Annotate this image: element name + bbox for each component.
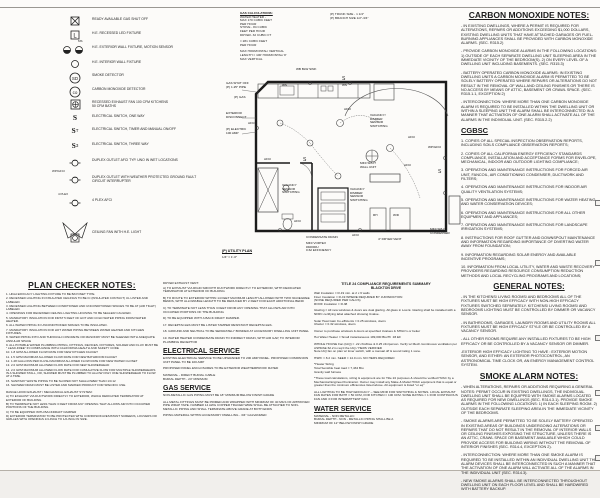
afci-label: AFCI [344,108,351,112]
switch-symbol: S [303,157,307,163]
wp-duplex-outlet-icon: WP/GFCI [58,174,92,186]
duplex-outlet-icon [58,157,92,169]
leader-line [242,90,256,92]
afci-label: AFCI [294,220,301,224]
note-paragraph: - INTERCONNECTION: WHERE MORE THAN ONE S… [461,453,597,474]
note-paragraph: - BATTERY OPERATED CARBON MONOXIDE ALARM… [461,71,597,97]
mini-split-wall-unit [370,174,400,182]
sink-note-label: WB BLW SINK [296,68,316,72]
closet [318,188,348,231]
note-paragraph: - IN THE KITCHENS/ LIVING ROOMS/ AND BED… [461,295,597,316]
note-line: Hot Water Heater = Small instantaneous 1… [314,336,458,340]
note-line: 17. RECEPTACLES MUST BE LISTED TAMPER RE… [163,324,311,328]
margin-tick [595,390,600,396]
note-line: A) TO EXHAUST VIA RIGID SMOOTH DUCTWORK … [163,287,311,294]
gas-service-title: GAS SERVICE [163,385,311,392]
note-line: 18. GROUND AND NEUTRAL TO BE SEPARATELY … [163,330,311,334]
afci-label: AFCI [404,164,411,168]
legend-label: H.E. RECESSED LED FIXTURE [92,30,141,35]
note-line: Solar Heat Gain Co-efficients = 0.25 win… [314,320,458,327]
note-line: EXISTING ELECTRICAL SERVICE TO BE UPGRAD… [163,357,311,364]
cgbsc-body: 1. COPIES OF ALL SPECIAL INSPECTION OBSE… [461,139,597,278]
three-way-sup: 3 [76,143,79,148]
note-paragraph: - NEW SMOKE ALARMS SHALL BE INTERCONNECT… [461,479,597,492]
vacancy-dimmer-label: VACANCY DIMMER SENSOR SWITCHING [350,188,368,202]
legend-item: L H.E. RECESSED LED FIXTURE [58,30,248,40]
led-fixture-icon: L [58,30,92,40]
switch-one-way-symbol: S [58,113,92,122]
plan-caption-title: (P) UTILITY PLAN [222,250,252,254]
legend-label: 4 PLEX AFCI [92,197,112,202]
note-paragraph: - IN BATHROOMS, GARAGES, LAUNDRY ROOMS A… [461,321,597,334]
vortex-label: MINI VORTEX #40000U 0.62 EFFICIENCY [306,242,331,253]
sd-letters: SD [72,76,79,81]
note-line: 9. ALL POTABLE WATER PLUMBING PIPING, FI… [6,344,158,351]
ws-label: WS [282,84,287,88]
co-notes-title: CARBON MONOXIDE NOTES: [461,10,597,20]
washer-dryer-box [390,208,410,230]
gas-calc-total: = 281 CUBIC FEET PER HOUR [240,40,292,47]
wall-fixture-icon [58,59,92,69]
legend-label: H.E. INTERIOR WALL FIXTURE [92,59,141,64]
legend-item: READY AVAILABLE GAS SHUT OFF [58,16,248,26]
plan-checker-items: 1. HIGH EFFICACY LIGHTING FIXTURE TO BE … [6,293,158,387]
wiring-run [390,148,420,198]
dryer-vent-items: A) TO EXHAUST VIA RIGID SMOOTH DUCTWORK … [163,287,311,321]
note-line: 9. INFORMATION REGARDING SOLAR ENERGY AN… [461,253,597,262]
legend-label: CEILING FAN WITH H.E. LIGHT [92,222,141,234]
legend-label: RECESSED EXHAUST FAN 100 CFM KITCHENS 50… [92,99,168,108]
note-paragraph: - SMOKE ALARMS ARE PERMITTED TO BE SOLEL… [461,419,597,449]
utility-floor-plan: S S S WB BLW SINK GAS SHUT OFF (P) 1.25"… [220,68,464,283]
wd-label: W/D [393,214,399,218]
note-line: 2. RECESSED LIGHTING IN INSULATED CEILIN… [6,297,158,304]
vacancy-dimmer-label: VACANCY/ DIMMER SENSOR SWITCHING [370,114,388,128]
mini-split-condenser-box [449,196,460,224]
fourplex-tag: 4 PLEX [58,192,68,196]
fourplex-outlet-icon: 4 PLEX [58,197,92,209]
gas-shutoff-label: GAS SHUT OFF (P) 1.25" PIPE [226,82,256,89]
column-mechanical-electrical: DRYER EXHAUST VENT: A) TO EXHAUST VIA RI… [163,282,311,421]
switch-timer-symbol: ST [58,126,92,135]
margin-tick [595,455,600,461]
note-paragraph: - WHEN ALTERATIONS, REPAIRS OR ADDITIONS… [461,385,597,415]
note-paragraph: -EXTERIOR HIGH EFFICACY LIGHTING TO HAVE… [461,350,597,367]
note-line: Wall Insulation = R-19 min. at 2 x 6 wal… [314,292,458,306]
toilet [283,219,292,230]
dryer-vent-label: 4" DRYER VENT [378,238,402,242]
wall-fixture-motion-icon: MS [58,44,92,56]
motion-sensor-tag: MS [78,39,83,43]
timer-sup: T [76,128,79,133]
legend-label: CARBON MONOXIDE DETECTOR [92,86,145,91]
note-line: B) TO TERMINATE NOT LESS THAN 3 FEET FRO… [6,403,158,410]
note-line: 16. SHOWER DRAIN MUST BE LISTED AND MARK… [6,384,158,387]
switch-letter: S [73,113,77,122]
afci-label: AFCI [408,136,415,140]
kitchen-counter [258,84,370,98]
note-line: 1. COPIES OF ALL SPECIAL INSPECTION OBSE… [461,139,597,148]
gas-shutoff-icon [58,16,92,26]
range-hood-box [370,208,386,230]
title24-subtitle: BLACKTON DRIVE [314,286,458,290]
note-line: 7. OPERATION AND MAINTENANCE INSTRUCTION… [461,223,597,232]
note-line: 7. MANDATORY INSULATION FOR HOT WATER PI… [6,329,158,336]
p-electric-label: (P) ELECTRIC 100 AMP [226,128,246,135]
plan-checker-title: PLAN CHECKER NOTES: [6,280,158,290]
margin-tick [595,335,600,341]
co-notes-body: - IN EXISTING DWELLINGS, WHERE A PERMIT … [461,24,597,122]
note-line: *Heater Sizing Total Sensible heat load … [314,363,458,374]
branch-size: (P) BRANCH SIZE 1/2"-3/4" [330,17,400,21]
legend-label: H.E. EXTERIOR WALL FIXTURE, MOTION SENSO… [92,44,173,49]
note-line: B) TO ROUTE TO EXTERIOR WITHIN 14 FEET M… [163,297,311,304]
range-hood-items: A) TO EXHAUST VIA DUCTWORK DIRECTLY TO E… [6,395,158,421]
water-service-body: MATERIAL - NON METALLIC BURIAL DEPTH - N… [314,415,458,426]
plan-caption-scale: 1/4" = 1'-0" [222,256,237,260]
switch-three-way-symbol: S3 [58,141,92,150]
note-paragraph: - INTERCONNECTION: WHERE MORE THAN ONE C… [461,100,597,121]
plan-sheet: READY AVAILABLE GAS SHUT OFF L H.E. RECE… [0,0,600,498]
numbered-items: 17. RECEPTACLES MUST BE LISTED TAMPER RE… [163,324,311,344]
note-line: MATERIAL - DIRECT BURIAL CABLE BURIAL DE… [163,374,311,381]
ws-label: WS [342,84,347,88]
co-detector-icon: co [58,86,92,98]
note-line: NON-METALLIC GAS PIPING MUST BE 18" MINI… [163,394,311,398]
water-service-title: WATER SERVICE [314,406,458,413]
exterior-disconnect-label: EXTERIOR DISCONNECT [226,112,246,119]
floor-plan-drawing: S S S [220,68,464,283]
co-letters: co [73,90,78,95]
mini-split-wall-label: MINI SPLIT WALL UNIT [360,162,376,169]
note-line: ALL METAL FITTINGS MUST BE PRIMED AND WR… [163,401,311,412]
mini-split-condenser-label: MINI SPLIT CONDENSER [430,228,462,235]
pipe-sizes: (P) TRUNK SIZE - 1 1/4" (P) BRANCH SIZE … [330,13,400,20]
smoke-notes-body: - WHEN ALTERATIONS, REPAIRS OR ADDITIONS… [461,385,597,492]
right-notes-column: CARBON MONOXIDE NOTES: - IN EXISTING DWE… [461,10,597,496]
switch-symbol: S [438,169,442,175]
gas-calc-body: WATER HEATER - MAX 170 CUBIC FEET PER HO… [240,16,292,38]
vacancy-sensor-label: VACANCY SENSOR SWITCHING [282,184,300,195]
electrical-service-title: ELECTRICAL SERVICE [163,348,311,355]
legend-item: MS H.E. EXTERIOR WALL FIXTURE, MOTION SE… [58,44,248,56]
title24-body: Wall Insulation = R-19 min. at 2 x 6 wal… [314,292,458,402]
note-line: 5. MANDATORY INSULATION FOR FIRST 5 FEET… [6,317,158,324]
margin-tick [595,200,600,206]
note-line: 3. OPERATION AND MAINTENANCE INSTRUCTION… [461,168,597,181]
note-line: PROPOSED PANEL ENCLOSURES TO BE EXTERIOR… [163,367,311,371]
note-line: D) TO BE EQUIPPED WITH A BACK DRAFT DAMP… [163,317,311,321]
exterior-wall [256,82,446,231]
legend-label: ELECTRICAL SWITCH, TIMER AND MANUAL ON/O… [92,126,176,131]
note-line: *These load calculations, sizing & equip… [314,377,458,388]
legend-label: ELECTRICAL SWITCH, ONE WAY [92,113,145,118]
wiring-run [310,143,338,176]
afci-label: AFCI [264,158,271,162]
afci-label: AFCI [352,234,359,238]
note-line: C) TO TERMINATE NOT LESS THAN 3 FEET FRO… [163,307,311,314]
note-line: WHOLE HOUSE Fan (IAQ) = .22 cfm/Dwe & 0.… [314,343,458,354]
wp-gfci-label: WP/GFCI [428,146,441,150]
legend-label: DUPLEX OUTLET WITH WEATHER PROTECTED GRO… [92,174,196,183]
legend-label: SMOKE DETECTOR [92,72,124,77]
note-line: MATERIAL - NON METALLIC BURIAL DEPTH - N… [314,415,458,426]
bathroom-door-arc [300,163,312,180]
wiring-run [280,123,310,143]
general-notes-title: GENERAL NOTES: [461,282,597,291]
rh-label: RH [373,214,377,218]
margin-tick [595,425,600,431]
general-notes-body: - IN THE KITCHENS/ LIVING ROOMS/ AND BED… [461,295,597,367]
electrical-service-body: EXISTING ELECTRICAL SERVICE TO BE UPGRAD… [163,357,311,381]
condensate-drain-label: CONDENSATE DRAIN [306,236,338,240]
note-line: 5. OPERATION AND MAINTENANCE INSTRUCTION… [461,198,597,207]
plan-checker-notes: PLAN CHECKER NOTES: 1. HIGH EFFICACY LIG… [6,280,158,423]
smoke-detector-icon: SD [58,72,92,84]
note-line: HSPF = 8.2 min. SEER = 14.0 min. NO HERS… [314,357,458,361]
note-paragraph: - ALL OTHER ROOMS REQUIRE ANY INSTALLED … [461,337,597,346]
afci-label: AFCI [248,122,255,126]
gas-calc-maxlen: MAX HORIZONTAL/ VERTICAL LENGTH = 100' H… [240,50,292,61]
note-line: ALL LIGHTING TO BE HIGH EFFICACY -- SEE … [314,391,458,402]
note-line: 14. 2.0 GPM MAXIMUM ALLOWED FLOW RATE FO… [6,369,158,379]
smoke-notes-title: SMOKE ALARM NOTES: [461,371,597,381]
note-line: 3. RECESSED LIGHTING BETWEEN CONDITIONED… [6,305,158,312]
note-line: 10. INFORMATION FROM LOCAL UTILITY, WATE… [461,265,597,278]
refrigerator [374,84,394,100]
note-line: Glazing = All new windows & doors are du… [314,309,458,316]
legend-label: ELECTRICAL SWITCH, THREE WAY [92,141,149,146]
wp-gfci-tag: WP/GFCI [52,169,65,173]
cgbsc-title: CGBSC [461,126,597,135]
note-line: PIPING MATERIAL WITHIN ACCESSORY DWELLIN… [163,414,311,418]
note-line: 2. COPIES OF ALL CALIFORNIA ENERGY EFFIC… [461,152,597,165]
note-line: 6. OPERATION AND MAINTENANCE INSTRUCTION… [461,211,597,220]
door-swing-arc [345,89,448,116]
note-line: 4. OPERATION AND MAINTENANCE INSTRUCTION… [461,185,597,194]
note-line: 8. WATER PIPING INTO AND THROUGH CONCRET… [6,336,158,343]
note-line: 8. INSTRUCTIONS FOR ROOF GUTTER AND DOWN… [461,236,597,249]
margin-tick [595,260,600,266]
note-line: Owner to purchase windows & doors at spe… [314,330,458,334]
top-margin-rule [0,7,600,8]
exhaust-fan-icon [58,99,92,110]
legend-label: READY AVAILABLE GAS SHUT OFF [92,16,148,21]
p-gas-label: (P) GAS [234,96,246,100]
note-paragraph: - IN EXISTING DWELLINGS, WHERE A PERMIT … [461,24,597,45]
note-line: A) TO EXHAUST VIA DUCTWORK DIRECTLY TO E… [6,395,158,402]
gas-calculations: GAS CALCULATIONS: WATER HEATER - MAX 170… [240,12,292,61]
ceiling-fan-icon [58,222,92,244]
gas-service-body: NON-METALLIC GAS PIPING MUST BE 18" MINI… [163,394,311,418]
legend-label: DUPLEX OUTLET AFCI TYP. UNO IN WET LOCAT… [92,157,178,162]
note-line: D) EXTERIOR TERMINATOR TO BE PROTECTED W… [6,415,158,422]
note-paragraph: - PROVIDE CARBON MONOXIDE ALARMS IN THE … [461,49,597,66]
title24-summary: TITLE 24 COMPLIANCE REQUIREMENTS SUMMARY… [314,282,458,428]
note-line: 19. WATER HEATER CONDENSATE DRAIN TO IND… [163,337,311,344]
